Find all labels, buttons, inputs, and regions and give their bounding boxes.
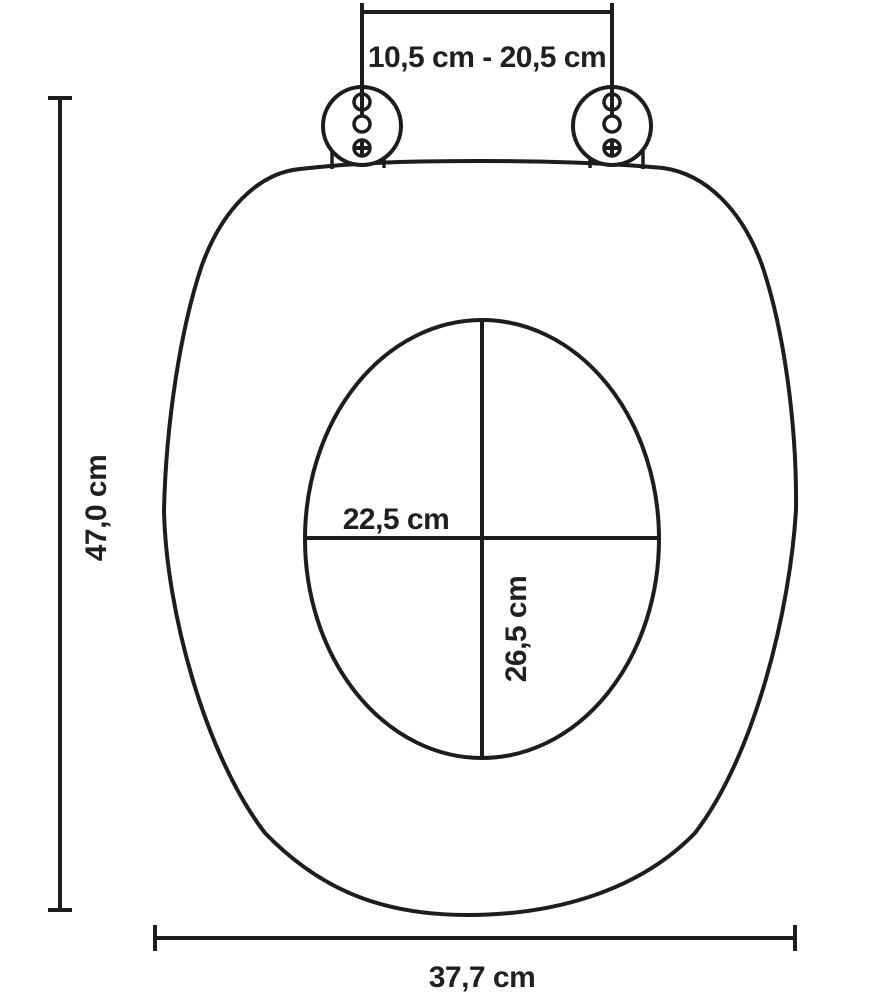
hinge-distance-label: 10,5 cm - 20,5 cm (368, 41, 606, 74)
diagram-canvas: 10,5 cm - 20,5 cm 47,0 cm 22,5 cm 26,5 c… (0, 0, 885, 1000)
cutout-width-label: 22,5 cm (343, 503, 450, 536)
left-hinge-pin-middle (354, 116, 370, 132)
overall-width-label: 37,7 cm (429, 961, 536, 994)
cutout-length-label: 26,5 cm (500, 576, 533, 683)
overall-length-label: 47,0 cm (80, 455, 113, 562)
toilet-seat-dimension-diagram: 10,5 cm - 20,5 cm 47,0 cm 22,5 cm 26,5 c… (0, 0, 885, 1000)
right-hinge-pin-middle (604, 116, 620, 132)
